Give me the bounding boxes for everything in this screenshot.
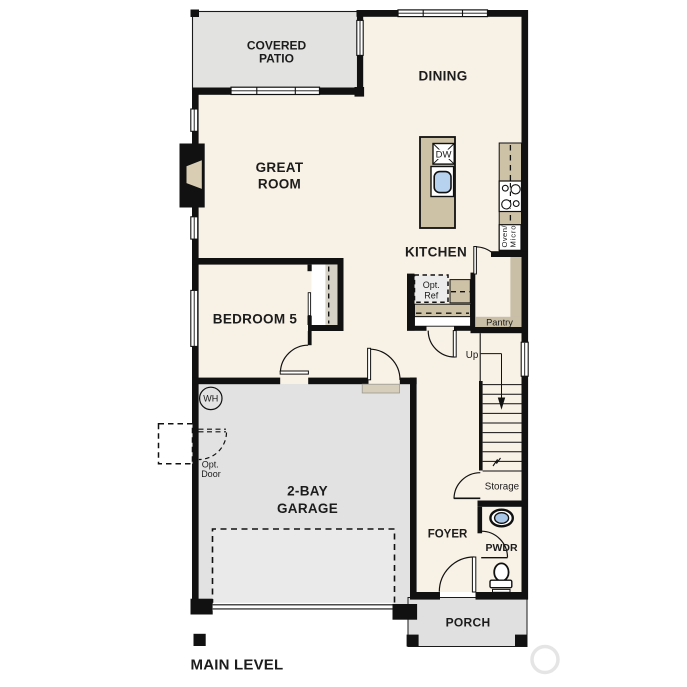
svg-text:Storage: Storage [485,482,520,493]
svg-text:Pantry: Pantry [486,317,513,327]
svg-text:FOYER: FOYER [428,529,468,541]
svg-text:Opt.: Opt. [202,460,219,470]
svg-text:MAIN LEVEL: MAIN LEVEL [191,657,284,674]
svg-text:Door: Door [201,469,221,479]
svg-text:KITCHEN: KITCHEN [405,245,467,260]
svg-text:Ref: Ref [424,291,439,301]
svg-text:COVERED: COVERED [247,39,307,53]
svg-text:PORCH: PORCH [446,616,491,630]
svg-text:GREAT: GREAT [256,160,304,175]
svg-text:ROOM: ROOM [258,177,301,192]
svg-text:GARAGE: GARAGE [277,501,338,516]
svg-text:BEDROOM 5: BEDROOM 5 [213,312,298,327]
svg-text:PWDR: PWDR [485,542,517,554]
svg-text:Micro: Micro [509,226,518,248]
svg-text:Up: Up [466,350,479,361]
svg-text:Opt.: Opt. [423,280,440,290]
svg-text:PATIO: PATIO [259,52,294,66]
svg-text:DINING: DINING [418,69,467,84]
svg-text:2-BAY: 2-BAY [287,484,328,499]
svg-text:DW: DW [436,150,452,161]
svg-text:WH: WH [203,394,218,404]
